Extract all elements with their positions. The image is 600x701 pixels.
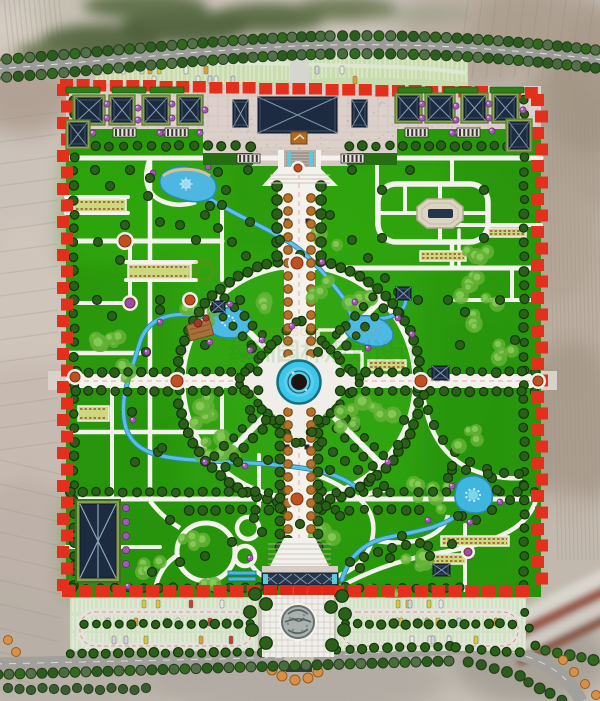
svg-text:绿洲园林规划设计: 绿洲园林规划设计 [228,338,420,366]
svg-text:LANDSCAPE DESIGN: LANDSCAPE DESIGN [258,325,382,339]
